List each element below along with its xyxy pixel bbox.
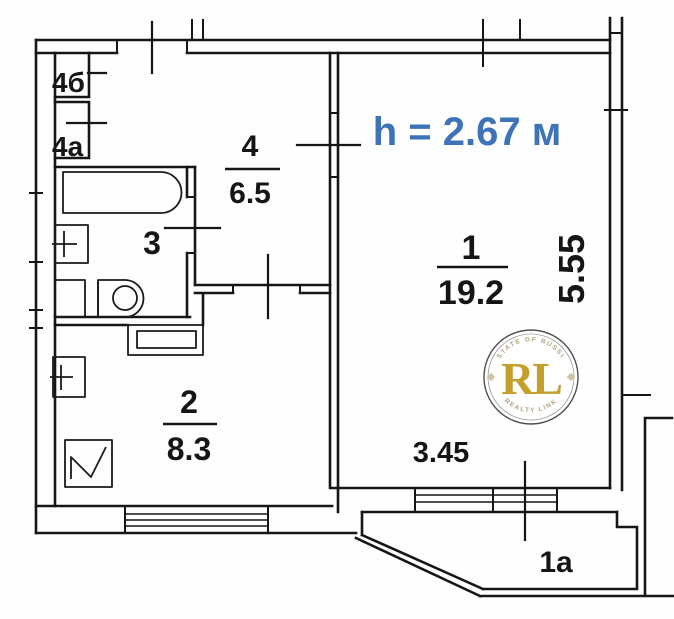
- room1-left-wall: [330, 53, 338, 488]
- closet4a-label: 4a: [52, 131, 84, 162]
- balcony-contour: [356, 418, 674, 596]
- corridor-kitchen-wall: [195, 285, 330, 325]
- room2-number: 2: [180, 384, 198, 420]
- top-wall-stubs: [192, 20, 520, 66]
- room1-window-panes: [415, 495, 557, 502]
- rl-watermark: ESTATE OF RUSSIA REALTY LINK RL: [0, 0, 578, 424]
- vent-duct-box: [128, 325, 203, 355]
- bathroom-sink: [52, 225, 88, 263]
- room4-area: 6.5: [229, 177, 271, 210]
- walls: [30, 18, 674, 596]
- room1-number: 1: [462, 229, 481, 267]
- watermark-monogram: RL: [501, 353, 561, 404]
- balcony-label: 1a: [539, 546, 573, 579]
- room1-area: 19.2: [438, 274, 504, 312]
- floor-plan-drawing: 1 19.2 2 8.3 3 4 6.5 4б 4a 1a 3.45 5.55 …: [0, 0, 674, 619]
- room1-bottom-wall: [332, 488, 610, 512]
- room2-area: 8.3: [167, 431, 211, 467]
- bathroom-bottom-wall: [55, 317, 190, 325]
- stove: [65, 440, 112, 487]
- room4-number: 4: [242, 130, 259, 163]
- kitchen-window-panes: [125, 514, 268, 526]
- ceiling-height-note: h = 2.67 м: [373, 110, 562, 154]
- dim-room1-height: 5.55: [551, 234, 592, 304]
- dim-room1-width: 3.45: [413, 437, 469, 469]
- floor-plan-page: 1 19.2 2 8.3 3 4 6.5 4б 4a 1a 3.45 5.55 …: [0, 0, 674, 619]
- room3-number: 3: [143, 225, 161, 261]
- room1-window-frame: [415, 488, 557, 512]
- toilet: [55, 280, 144, 317]
- bathtub: [63, 172, 182, 213]
- bathroom-right-wall: [187, 167, 195, 317]
- closet4b-label: 4б: [52, 67, 85, 98]
